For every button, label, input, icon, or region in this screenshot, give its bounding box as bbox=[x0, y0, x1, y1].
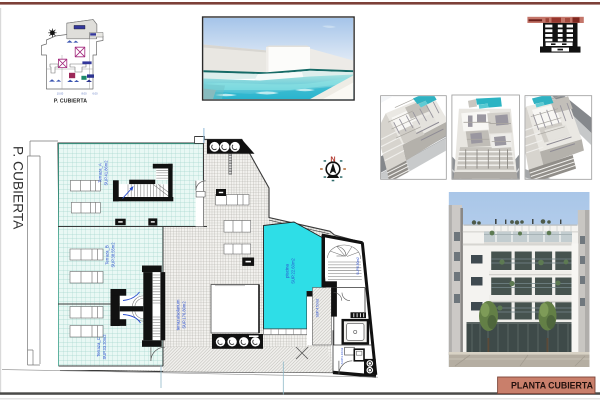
svg-text:PLANTA CUBIERTA: PLANTA CUBIERTA bbox=[511, 381, 594, 391]
svg-text:piscina: piscina bbox=[285, 264, 290, 279]
svg-text:10.00: 10.00 bbox=[57, 92, 64, 96]
svg-text:SUP.176.80m2: SUP.176.80m2 bbox=[182, 301, 187, 329]
svg-text:SUP.3.10m2: SUP.3.10m2 bbox=[340, 347, 344, 364]
svg-text:terraza/solarium: terraza/solarium bbox=[176, 299, 181, 330]
svg-text:SUP.4.50m2: SUP.4.50m2 bbox=[316, 298, 320, 317]
svg-text:8.00: 8.00 bbox=[81, 92, 87, 96]
svg-text:SUP.41.86m2: SUP.41.86m2 bbox=[104, 160, 109, 186]
svg-text:SUP.22.60m2: SUP.22.60m2 bbox=[291, 258, 296, 284]
svg-text:P. CUBIERTA: P. CUBIERTA bbox=[11, 146, 26, 230]
svg-text:Terraza_A: Terraza_A bbox=[98, 163, 103, 183]
svg-text:SUP.33.20m2: SUP.33.20m2 bbox=[102, 334, 107, 360]
svg-text:Terraza_C: Terraza_C bbox=[96, 337, 101, 357]
svg-text:P. CUBIERTA: P. CUBIERTA bbox=[54, 99, 87, 105]
svg-text:SUP.38.55m2: SUP.38.55m2 bbox=[111, 242, 116, 268]
svg-text:SUP.6.50m2: SUP.6.50m2 bbox=[356, 257, 360, 275]
svg-text:Terraza_B: Terraza_B bbox=[105, 245, 110, 265]
svg-text:6.00: 6.00 bbox=[92, 92, 98, 96]
